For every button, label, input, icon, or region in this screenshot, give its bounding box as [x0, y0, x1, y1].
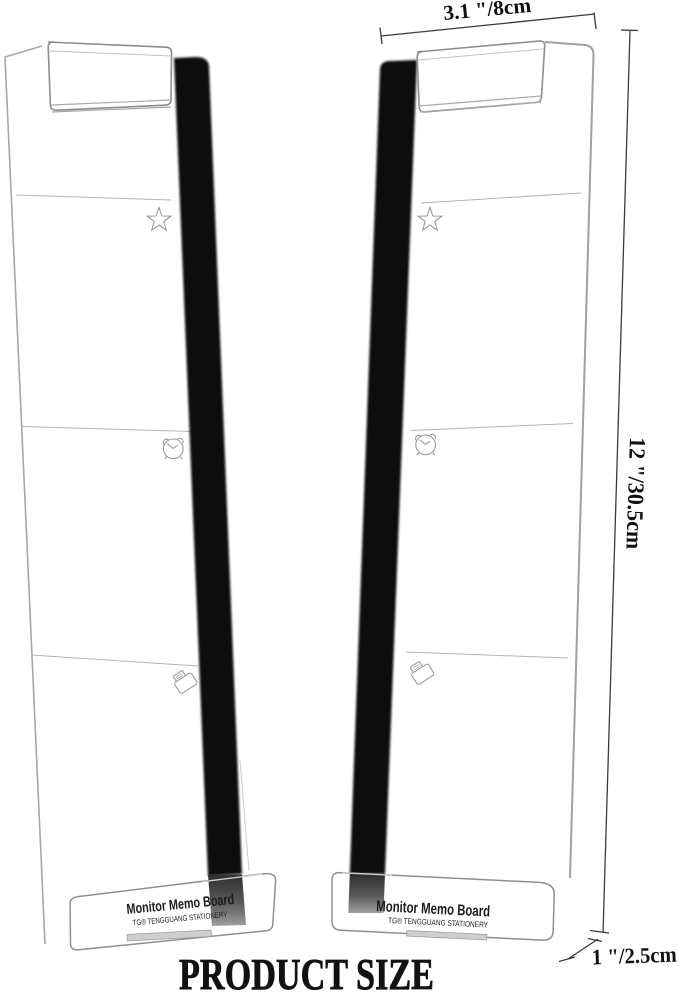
svg-text:1 "/2.5cm: 1 "/2.5cm — [591, 942, 677, 970]
svg-text:12 "/30.5cm: 12 "/30.5cm — [621, 437, 650, 550]
svg-text:PRODUCT SIZE: PRODUCT SIZE — [179, 950, 434, 993]
